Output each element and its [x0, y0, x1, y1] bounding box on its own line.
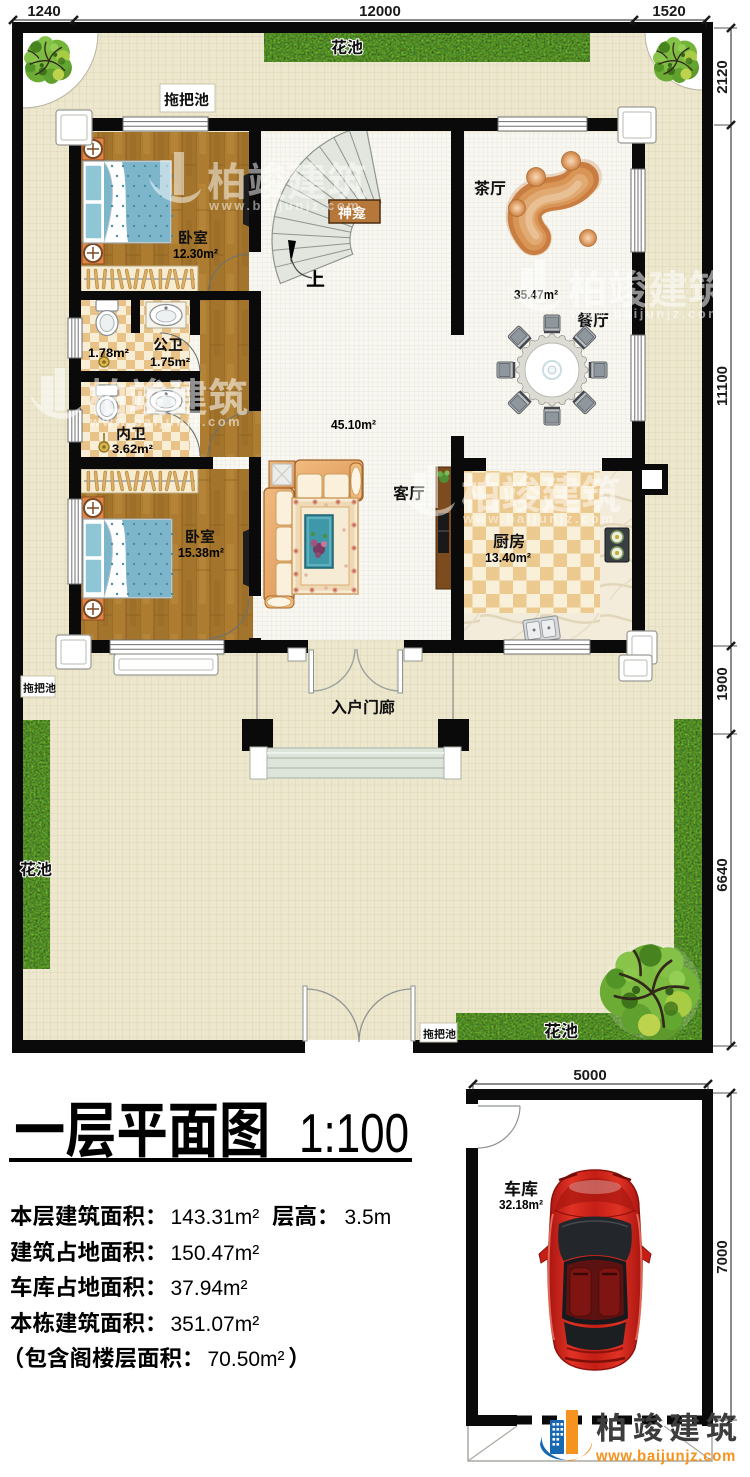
svg-text:70.50m²: 70.50m²: [208, 1348, 285, 1371]
svg-text:13.40m²: 13.40m²: [485, 550, 532, 565]
svg-text:2120: 2120: [714, 60, 731, 93]
svg-text:11100: 11100: [714, 366, 731, 406]
svg-text:3.62m²: 3.62m²: [112, 442, 153, 456]
svg-text:351.07m²: 351.07m²: [171, 1313, 260, 1336]
svg-text:1240: 1240: [27, 3, 60, 20]
svg-text:www.baijunjz.com: www.baijunjz.com: [569, 306, 722, 321]
svg-text:37.94m²: 37.94m²: [171, 1277, 248, 1300]
svg-text:www.baijunjz.com: www.baijunjz.com: [208, 198, 361, 213]
svg-text:12.30m²: 12.30m²: [173, 246, 219, 261]
svg-text:www.baijunjz.com: www.baijunjz.com: [595, 1448, 736, 1465]
svg-text:1:100: 1:100: [299, 1102, 409, 1164]
svg-text:1.75m²: 1.75m²: [150, 355, 190, 369]
svg-text:32.18m²: 32.18m²: [499, 1197, 544, 1212]
svg-text:12000: 12000: [359, 3, 401, 20]
svg-text:15.38m²: 15.38m²: [178, 545, 225, 560]
svg-text:45.10m²: 45.10m²: [331, 417, 377, 432]
svg-text:6640: 6640: [714, 858, 731, 891]
svg-text:1900: 1900: [714, 667, 731, 700]
svg-text:1.78m²: 1.78m²: [88, 346, 129, 360]
svg-text:www.baijunjz.com: www.baijunjz.com: [462, 511, 615, 526]
svg-text:7000: 7000: [714, 1240, 731, 1273]
svg-text:143.31m²: 143.31m²: [171, 1206, 260, 1229]
svg-text:150.47m²: 150.47m²: [171, 1242, 260, 1265]
svg-text:3.5m: 3.5m: [345, 1206, 392, 1229]
svg-text:www.baijunjz.com: www.baijunjz.com: [89, 414, 242, 429]
svg-text:1520: 1520: [652, 3, 685, 20]
svg-text:5000: 5000: [573, 1067, 606, 1084]
